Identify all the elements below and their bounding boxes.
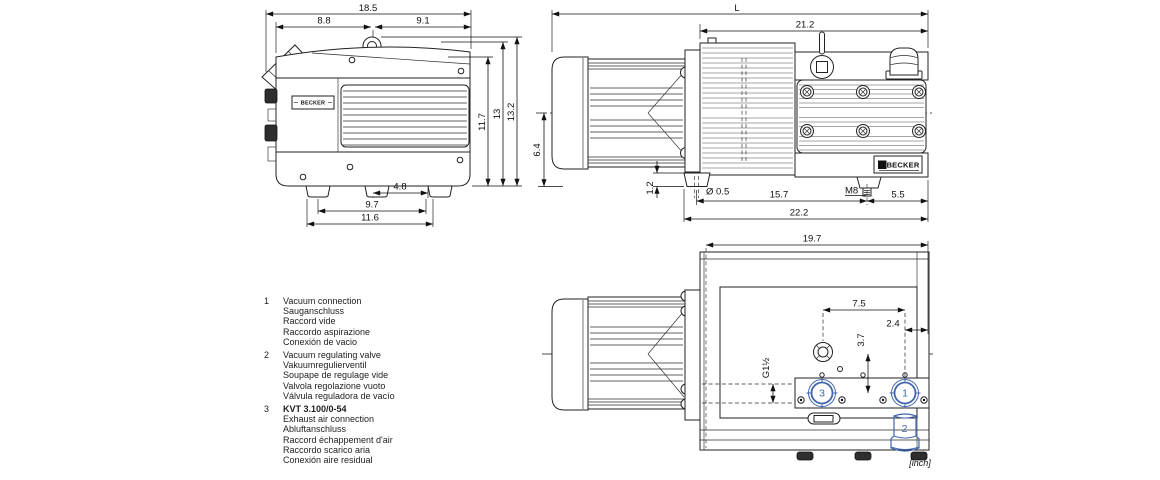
dim-stud-to-end: 5.5 <box>891 190 904 201</box>
handle-top-icon <box>808 413 840 424</box>
legend-line: Conexión de vacio <box>283 337 370 347</box>
legend-model-title: KVT 3.100/0-54 <box>283 404 393 414</box>
dim-stud-thread: M8 <box>845 186 858 197</box>
legend-item-3: 3 KVT 3.100/0-54 Exhaust air connection … <box>264 404 439 465</box>
motor-top <box>552 297 685 410</box>
gas-ballast-pin-icon <box>820 32 825 54</box>
becker-logo-icon <box>878 161 887 170</box>
oil-filler-cap-icon <box>886 48 922 79</box>
legend-line: Sauganschluss <box>283 306 370 316</box>
dim-port-to-end: 2.4 <box>886 319 899 330</box>
pump-top-strip-side <box>795 32 928 80</box>
top-cover <box>276 47 470 78</box>
lower-band <box>276 152 470 186</box>
front-view: BECKER 18.5 8.8 9.1 11.7 13 13.2 4.8 9.7… <box>262 3 522 227</box>
dim-right-of-eye: 9.1 <box>416 16 429 27</box>
dim-foot-span-outer: 11.6 <box>361 213 379 224</box>
housing-top <box>700 252 929 450</box>
dim-cover-height: 13 <box>492 109 503 120</box>
dim-base-length: 22.2 <box>790 208 809 219</box>
legend-line: Raccordo aspirazione <box>283 327 370 337</box>
legend-line: Valvola regolazione vuoto <box>283 381 395 391</box>
knob-icon <box>265 125 277 141</box>
dim-foot-span-center: 4.8 <box>393 182 406 193</box>
legend-line: Válvula reguladora de vacío <box>283 391 395 401</box>
top-view: 3 1 2 19.7 7.5 2.4 3.7 G1½ [inch] <box>542 234 936 469</box>
legend-line: Soupape de regulage vide <box>283 370 395 380</box>
right-foot <box>857 177 881 188</box>
legend-number: 1 <box>264 296 283 347</box>
dim-port-thread: G1½ <box>761 358 772 379</box>
legend-line: Conexión aire residual <box>283 455 393 465</box>
dim-hole-to-stud: 15.7 <box>770 190 789 201</box>
callout-exhaust-number: 3 <box>819 388 825 400</box>
sight-glass-icon <box>811 56 834 79</box>
brand-text-front: BECKER <box>301 101 325 107</box>
legend-line: Vakuumregulierventil <box>283 360 395 370</box>
pump-fin-block-side <box>700 38 795 175</box>
legend-line: Exhaust air connection <box>283 414 393 424</box>
legend-line: Raccord vide <box>283 316 370 326</box>
knob-icon <box>265 89 277 103</box>
becker-label-side: BECKER <box>874 156 922 173</box>
callout-vacuum-number: 1 <box>902 388 908 400</box>
legend: 1 Vacuum connection Sauganschluss Raccor… <box>264 296 439 468</box>
dim-pump-length: 21.2 <box>796 20 815 31</box>
pump-body-front <box>276 78 470 186</box>
dim-total-height: 13.2 <box>506 103 517 122</box>
feet-front <box>306 186 452 197</box>
callout-valve-number: 2 <box>902 423 908 435</box>
legend-line: Raccord échappement d'air <box>283 435 393 445</box>
legend-item-2: 2 Vacuum regulating valve Vakuumregulier… <box>264 350 439 401</box>
dim-shaft-height: 6.4 <box>532 143 543 156</box>
legend-line: Abluftanschluss <box>283 424 393 434</box>
motor-side <box>552 57 685 169</box>
dim-total-width: 18.5 <box>359 3 378 14</box>
dim-total-length: L <box>734 3 739 14</box>
legend-line: Vacuum regulating valve <box>283 350 395 360</box>
left-foot <box>684 173 710 187</box>
technical-drawing-canvas: BECKER 18.5 8.8 9.1 11.7 13 13.2 4.8 9.7… <box>0 0 1160 480</box>
dim-center-to-port: 3.7 <box>856 333 867 346</box>
pump-block-side: BECKER <box>795 80 928 177</box>
side-view: BECKER L 21.2 6.4 1.2 Ø 0.5 15.7 5.5 <box>532 3 934 222</box>
legend-line: Raccordo scarico aria <box>283 445 393 455</box>
dim-foot-height: 1.2 <box>645 181 656 194</box>
feet-top <box>797 452 927 460</box>
legend-number: 3 <box>264 404 283 465</box>
technical-drawing-page: BECKER 18.5 8.8 9.1 11.7 13 13.2 4.8 9.7… <box>0 0 1160 480</box>
dim-hole-diameter: Ø 0.5 <box>706 187 729 198</box>
units-note: [inch] <box>908 458 931 468</box>
side-knobs <box>265 89 277 161</box>
dim-left-of-eye: 8.8 <box>317 16 330 27</box>
brand-text-side: BECKER <box>887 161 920 170</box>
legend-line: Vacuum connection <box>283 296 370 306</box>
legend-number: 2 <box>264 350 283 401</box>
dim-foot-span-mid: 9.7 <box>365 200 378 211</box>
dim-eye-to-port: 7.5 <box>852 299 865 310</box>
legend-item-1: 1 Vacuum connection Sauganschluss Raccor… <box>264 296 439 347</box>
dim-pump-length-top: 19.7 <box>803 234 822 245</box>
dim-body-height: 11.7 <box>477 113 488 131</box>
